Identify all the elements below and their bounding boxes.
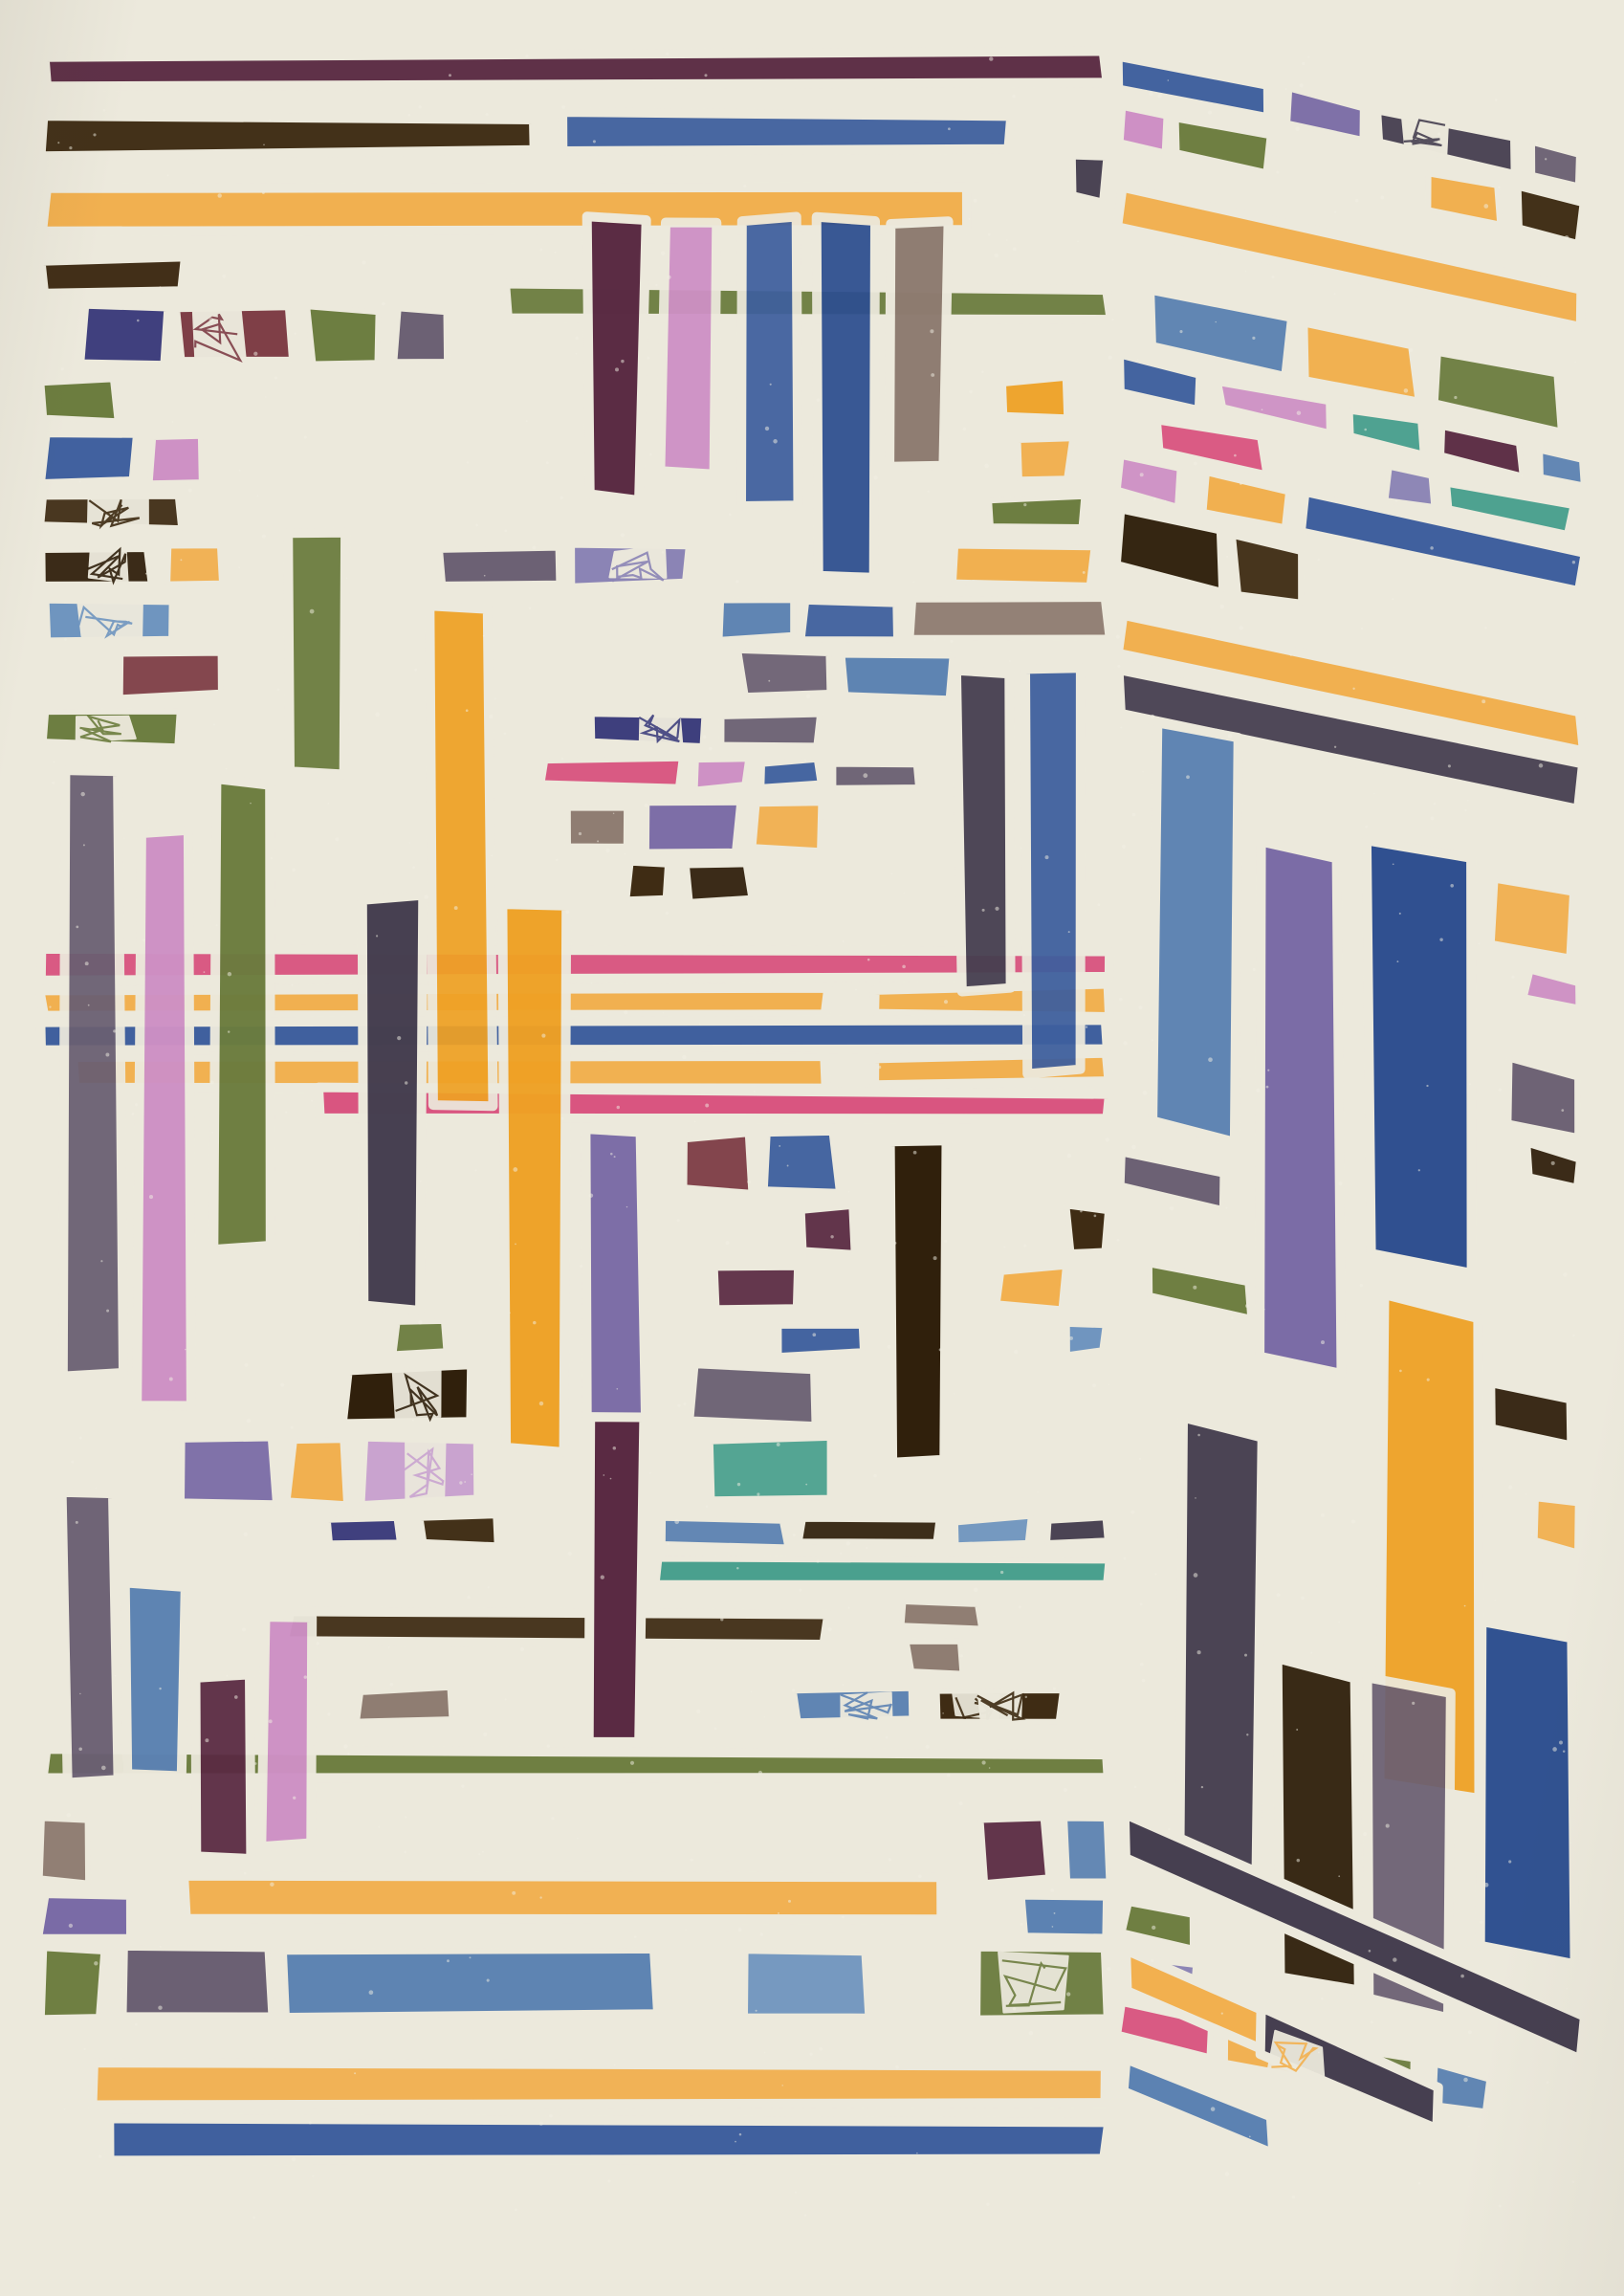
poster-canvas [0,0,1624,2296]
abstract-mosaic-artwork [0,0,1624,2296]
